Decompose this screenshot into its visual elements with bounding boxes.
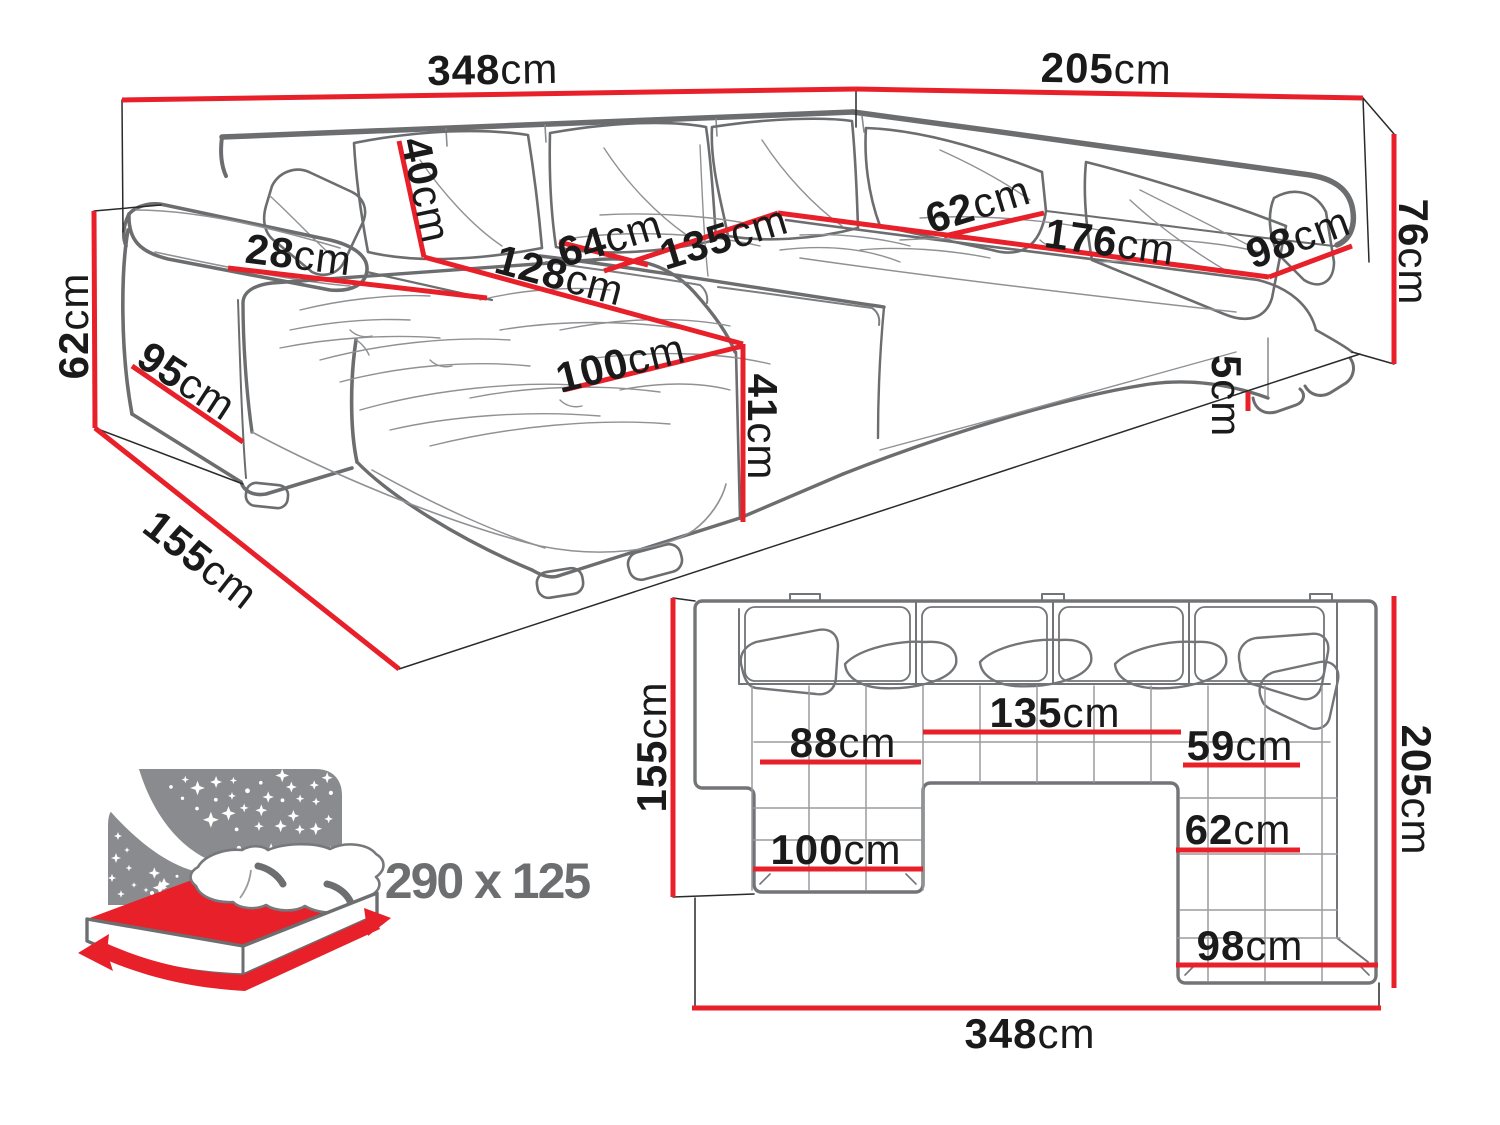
svg-text:205cm: 205cm: [1040, 44, 1172, 93]
svg-text:59cm: 59cm: [1187, 722, 1294, 769]
svg-text:290 x 125: 290 x 125: [385, 853, 591, 909]
svg-text:205cm: 205cm: [1393, 724, 1440, 855]
svg-text:98cm: 98cm: [1197, 922, 1304, 969]
svg-text:348cm: 348cm: [427, 45, 559, 94]
svg-text:135cm: 135cm: [989, 689, 1120, 736]
svg-text:62cm: 62cm: [1185, 806, 1292, 853]
svg-text:100cm: 100cm: [770, 826, 901, 873]
svg-text:155cm: 155cm: [628, 681, 675, 812]
svg-text:41cm: 41cm: [739, 374, 786, 481]
svg-text:348cm: 348cm: [964, 1010, 1095, 1057]
svg-text:62cm: 62cm: [50, 273, 97, 380]
svg-text:88cm: 88cm: [790, 719, 897, 766]
svg-text:5cm: 5cm: [1203, 355, 1250, 437]
svg-text:76cm: 76cm: [1390, 199, 1437, 306]
